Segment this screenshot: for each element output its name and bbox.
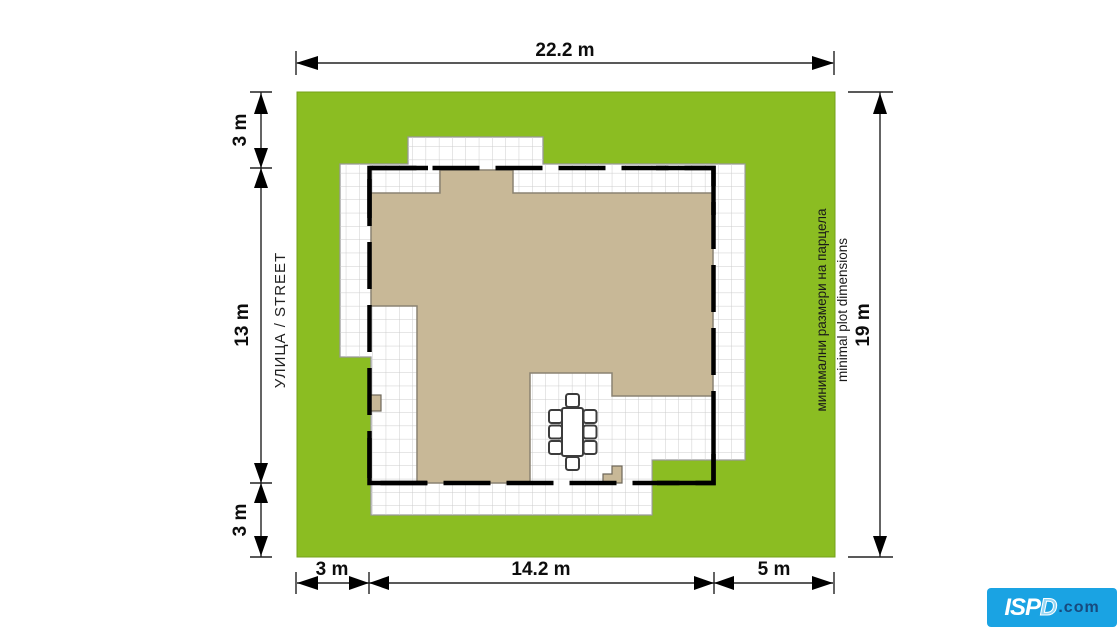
dim-bottom-right-label: 5 m	[758, 559, 791, 580]
street-label: УЛИЦА / STREET	[272, 252, 289, 388]
site-plan-figure: 22.2 m 3 m 13 m 3 m УЛИЦА / STREET 19 m …	[0, 0, 1120, 632]
chair-left-1	[549, 410, 562, 423]
plot-note-en: minimal plot dimensions	[835, 238, 850, 382]
chair-right-1	[584, 410, 597, 423]
dim-left-middle-label: 13 m	[232, 303, 253, 346]
dim-bottom-middle-label: 14.2 m	[511, 559, 570, 580]
chair-bottom	[566, 457, 579, 470]
dining-table	[562, 408, 583, 456]
chair-right-2	[584, 426, 597, 439]
chair-left-3	[549, 441, 562, 454]
site-plan-page: 22.2 m 3 m 13 m 3 m УЛИЦА / STREET 19 m …	[0, 0, 1120, 632]
logo-brand-text: ISP	[1004, 594, 1040, 622]
dim-left-top-label: 3 m	[230, 114, 251, 147]
dim-left	[250, 92, 272, 557]
logo-brand-outline-letter: D	[1040, 594, 1056, 622]
logo-tld-text: .com	[1058, 599, 1099, 617]
dim-left-bottom-label: 3 m	[230, 504, 251, 537]
dim-bottom-left-label: 3 m	[316, 559, 349, 580]
ispd-logo[interactable]: ISPD.com	[987, 588, 1117, 627]
dim-right-label: 19 m	[853, 303, 874, 346]
chair-right-3	[584, 441, 597, 454]
chair-left-2	[549, 426, 562, 439]
chair-top	[566, 394, 579, 407]
plot-note-bg: минимални размери на парцела	[814, 208, 829, 411]
dim-top-label: 22.2 m	[535, 40, 594, 61]
